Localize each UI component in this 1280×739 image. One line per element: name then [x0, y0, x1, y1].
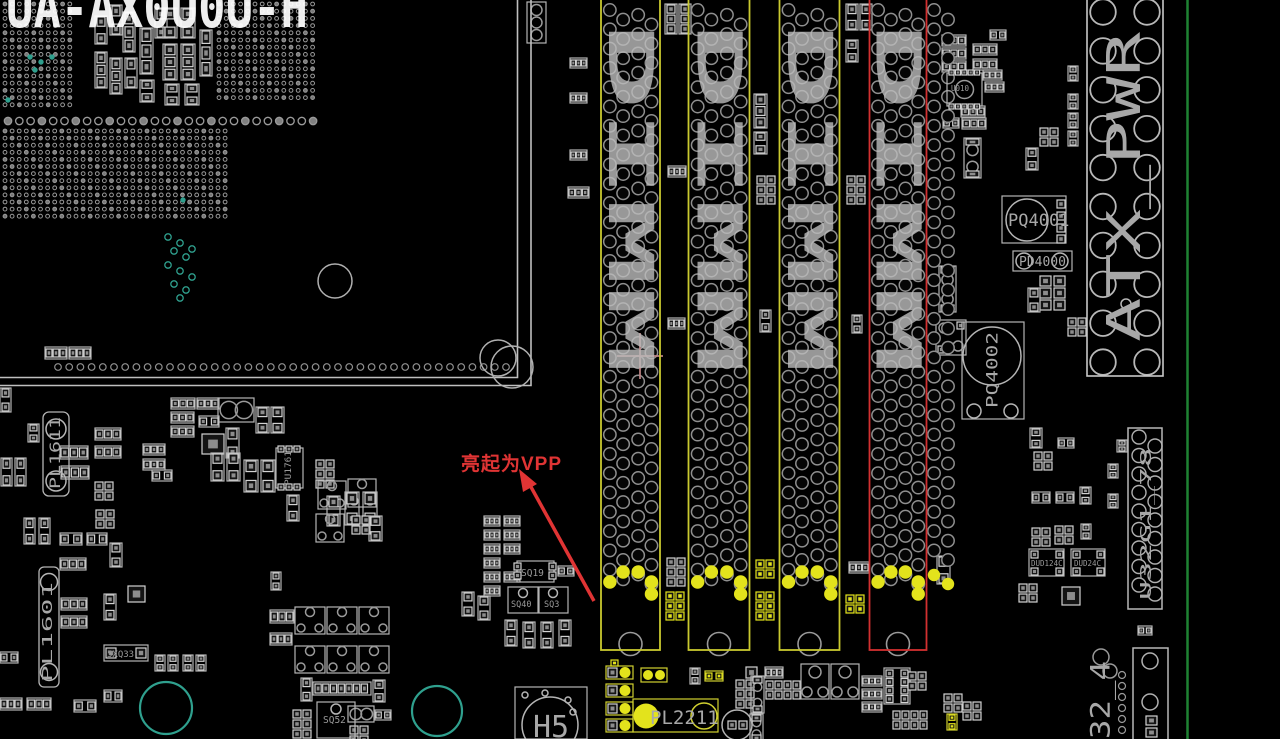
refdes-dud124c: DUD124C — [1031, 559, 1063, 568]
atx-power-label: ATX_PWR — [1097, 32, 1151, 342]
refdes-pl2211: PL2211 — [650, 707, 719, 729]
dimm-slot-1-label: DIMM — [594, 22, 667, 374]
refdes-pd4000: PD4000 — [1019, 255, 1066, 270]
usb32-label: 32_4 — [1086, 661, 1117, 739]
labeled-components[interactable] — [39, 412, 659, 729]
dimm-slot-4-label: DIMM — [862, 22, 935, 374]
refdes-5xq33: 5XQ33 — [107, 650, 134, 660]
vpp-annotation-label: 亮起为VPP — [461, 449, 562, 476]
top-silkscreen-text: UA-AX0U0U-H — [6, 0, 308, 41]
refdes-sq19: SQ19 — [521, 568, 544, 579]
refdes-pu1761: PU1761 — [284, 451, 294, 485]
board-canvas: UA-AX0U0U-H DIMM DIMM DIMM DIMM ATX_PWR … — [0, 0, 1280, 739]
pcb-board-view: UA-AX0U0U-H DIMM DIMM DIMM DIMM ATX_PWR … — [0, 0, 1280, 739]
refdes-pl1611: PL1611 — [48, 417, 64, 489]
socket-outline-outer — [0, 0, 531, 386]
dimm-slot-3-label: DIMM — [773, 22, 846, 374]
refdes-sq52: SQ52 — [323, 715, 346, 726]
mounting-hole-1 — [140, 682, 192, 734]
refdes-pq4002: PQ4002 — [983, 332, 1002, 408]
mounting-hole-2 — [412, 686, 462, 736]
refdes-u010: U010 — [951, 84, 970, 93]
refdes-sq40: SQ40 — [511, 600, 531, 610]
refdes-pl1601: PL1601 — [41, 582, 56, 682]
vpp-annotation-arrow — [519, 469, 594, 601]
refdes-dud24c: DUD24C — [1074, 559, 1101, 568]
refdes-pq4001: PQ4001 — [1008, 211, 1069, 231]
refdes-sq3: SQ3 — [544, 600, 559, 610]
socket-hole — [318, 264, 352, 298]
refdes-h5: H5 — [533, 710, 569, 739]
socket-corner-hole-2 — [491, 346, 533, 388]
dimm-slot-2-label: DIMM — [683, 22, 756, 374]
u32g1-label: U32G1_78 — [1137, 448, 1155, 600]
